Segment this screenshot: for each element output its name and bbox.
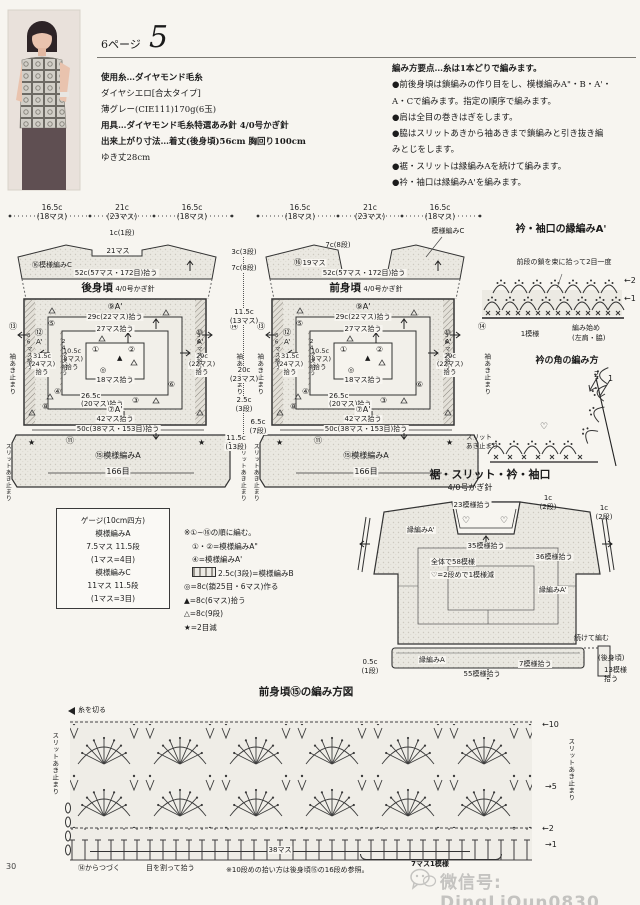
num-3: ③ [132, 396, 139, 406]
slit-stop-left: スリットあき止まり [50, 732, 58, 795]
lace-chart [66, 716, 544, 864]
points-text: 編み方要点…糸は1本どりで編みます。 ●前後身頃は鎖編みの作り目をし、模様編みA… [392, 61, 638, 191]
yoke-label: 模様編みC [432, 227, 465, 235]
yoke-label: ⑯模様編みC [32, 261, 72, 269]
dim-115a-sts: (13マス) [229, 317, 259, 325]
num-2: ② [128, 345, 135, 355]
num-1: ① [340, 345, 347, 355]
v24-pick: 24マス拾う [60, 339, 67, 376]
label-9A: ⑨A' [356, 302, 371, 312]
points-line: みとじをします。 [392, 142, 638, 158]
dim-115a: 11.5c [233, 308, 254, 316]
dim-center: 21c [363, 203, 377, 212]
c315-pick: 拾う [283, 369, 298, 377]
gauge-line: (1マス=3目) [57, 592, 169, 605]
materials-line: 出来上がり寸法…着丈(後身頃)56cm 胸回り100cm [101, 134, 391, 150]
front-panel-chart-section: 前身頃⑮の編み方図 糸を切る [30, 686, 630, 876]
dim-left: 16.5c [290, 203, 311, 212]
neck-heart-right: ♡ [500, 516, 508, 527]
points-line: 編み方要点…糸は1本どりで編みます。 [392, 61, 638, 77]
dim-right-sts: (18マス) [425, 212, 455, 221]
neck-heart-left: ♡ [462, 516, 470, 527]
ring-symbol: ◎ [100, 366, 106, 374]
back-ref: (後身頃) [598, 654, 624, 662]
pickup-42: 42マス拾う [96, 415, 135, 423]
dim-center-sts: (23マス) [107, 212, 137, 221]
row-10: ←10 [542, 720, 559, 730]
dim-left-sts: (18マス) [285, 212, 315, 221]
c105-pick: 拾う [314, 364, 327, 372]
dim-25c-sts: (3段) [235, 405, 254, 413]
center-dimensions: 3c(3段) 7c(8段) 11.5c (13マス) 20c (23マス) 2.… [224, 246, 268, 461]
hem-garment-shape [352, 496, 640, 678]
sts-166: 166目 [105, 467, 130, 477]
pickup-29-top: 29c(22マス)拾う [334, 313, 391, 321]
num-4: ④ [54, 387, 61, 397]
materials-text: 使用糸…ダイヤモンド毛糸 ダイヤシエロ[合太タイプ] 薄グレー(CIE111)1… [101, 70, 391, 166]
num-5: ⑤ [296, 319, 303, 329]
cuff-1c-a: 1c [544, 494, 552, 502]
corner-row-2: 2 [594, 370, 599, 380]
row-1-arrow: ←1 [624, 294, 636, 304]
neck-height: 7c(8段) [325, 241, 350, 249]
pick-23: 23模様拾う [453, 501, 492, 509]
legend-line: ①・②=模様編みA" [184, 540, 349, 554]
gauge-line: ゲージ(10cm四方) [57, 514, 169, 527]
corner-heart: ♡ [540, 422, 548, 433]
num-5: ⑤ [48, 319, 55, 329]
gauge-line: (1マス=4目) [57, 553, 169, 566]
slit-stop-left: スリットあき止まり [4, 443, 11, 502]
num-6: ⑥ [168, 380, 175, 390]
hem-hook: 4/0号かぎ針 [448, 483, 493, 493]
points-line: ●前後身頃は鎖編みの作り目をし、模様編みA"・B・A'・ [392, 77, 638, 93]
model-photo [8, 10, 80, 190]
v36-left: 36マス拾う [273, 333, 280, 370]
legend-line: ④=模様編みA' [184, 553, 349, 567]
hem-05c-2: (1段) [362, 667, 379, 675]
pickup-42: 42マス拾う [344, 415, 383, 423]
gauge-box: ゲージ(10cm四方) 模様編みA 7.5マス 11.5段 (1マス=4目) 模… [56, 508, 170, 609]
materials-line: ゆき丈28cm [101, 150, 391, 166]
yoke-num: ⑯ [294, 258, 302, 268]
cuff-1c-b: 1c [600, 504, 608, 512]
pickup-52: 52c(57マス・172目)拾う [322, 269, 407, 277]
sleeve-stop-left: 袖あき止まり [7, 353, 15, 395]
continue-label: 続けて編む [574, 634, 609, 642]
dim-right-sts: (18マス) [177, 212, 207, 221]
edge-A: 縁編みA [418, 656, 446, 664]
start-label-2: (左肩・脇) [572, 334, 605, 342]
pickup-27: 27マス拾う [344, 325, 383, 333]
gauge-line: 7.5マス 11.5段 [57, 540, 169, 553]
cuff-1c-b2: (2段) [596, 513, 613, 521]
dim-center-sts: (23マス) [355, 212, 385, 221]
symbol-legend: ※①~⑯の順に編む。 ①・②=模様編みA" ④=模様編みA' 2.5c(3段)=… [184, 526, 349, 634]
edge-A2-right: 縁編みA' [538, 586, 568, 594]
num-2: ② [376, 345, 383, 355]
piece-title: 後身頃 4/0号かぎ針 [81, 282, 154, 295]
pickup-18: 18マス拾う [344, 376, 383, 384]
pickup-50: 50c(38マス・153目)拾う [76, 425, 161, 433]
pickup-52: 52c(57マス・172目)拾う [74, 269, 159, 277]
pickup-50: 50c(38マス・153目)拾う [324, 425, 409, 433]
dim-65c: 6.5c [250, 418, 267, 426]
gauge-line: 模様編みA [57, 527, 169, 540]
start-label: 編み始め [572, 324, 600, 332]
dim-115b-sts: (13段) [224, 443, 247, 451]
label-9A: ⑨A' [108, 302, 123, 312]
legend-line: ★=2目減 [184, 621, 349, 635]
num-12-A: A' [284, 338, 291, 346]
v36-right: 36マス拾う [195, 333, 202, 370]
dim-25c: 2.5c [236, 396, 253, 404]
cuff-1c-a2: (2段) [540, 503, 557, 511]
gauge-line: 模様編みC [57, 566, 169, 579]
band-label: ⑮模様編みA [343, 451, 388, 461]
num-12-A: A' [36, 338, 43, 346]
star-right: ★ [198, 438, 205, 448]
piece-title: 前身頃 4/0号かぎ針 [329, 282, 402, 295]
triangle-filled: ▲ [365, 354, 370, 362]
legend-line: △=8c(9段) [184, 607, 349, 621]
materials-line: ダイヤシエロ[合太タイプ] [101, 86, 391, 102]
band-label: ⑮模様編みA [95, 451, 140, 461]
num-11: ⑪ [66, 436, 74, 446]
hem-diagram-section: 裾・スリット・衿・袖口 4/0号かぎ針 ♡ ♡ 23模様拾う 1c (2段) [352, 468, 640, 708]
row-1: →1 [545, 840, 557, 850]
legend-line: ※①~⑯の順に編む。 [184, 526, 349, 540]
slit-stop-right: スリットあき止まり [566, 738, 574, 801]
dim-center: 21c [115, 203, 129, 212]
pick-55: 55模様拾う [463, 670, 502, 678]
total-58: 全体で58模様 [430, 558, 476, 566]
row-5: →5 [545, 782, 557, 792]
dim-20c: 20c [237, 366, 252, 374]
num-8: ⑧ [42, 402, 49, 412]
num-13: ⑬ [9, 322, 17, 332]
star-left: ★ [276, 438, 283, 448]
legend-line-swatch: 2.5c(3段)=模様編みB [184, 567, 349, 581]
collar-note: 前段の鎖を束に拾って2目一度 [516, 258, 611, 266]
c315-pick: 拾う [35, 369, 50, 377]
pick-13-2: 拾う [604, 675, 618, 683]
legend-line: ▲=8c(6マス)拾う [184, 594, 349, 608]
points-line: ●衿・袖口は縁編みA'を編みます。 [392, 175, 638, 191]
collar-edging-section: 衿・袖口の縁編みA' 前段の鎖を束に拾って2目一度 ←2 ←1 1模様 編み始め… [482, 224, 640, 479]
dim-right: 16.5c [430, 203, 451, 212]
pattern-page: 6ページ 5 使用糸…ダイヤモンド毛糸 ダイヤシエロ[合太タイプ] 薄グレー(C… [0, 0, 640, 905]
label-7A: ⑦A' [107, 405, 124, 415]
motif-B-swatch [192, 567, 216, 577]
points-line: A・Cで編みます。指定の順序で編みます。 [392, 94, 638, 110]
collar-edging-chart [482, 272, 632, 324]
v24-pick: 24マス拾う [308, 339, 315, 376]
chart-title: 前身頃⑮の編み方図 [259, 686, 354, 699]
num-3: ③ [380, 396, 387, 406]
num-12: ⑫ [283, 328, 291, 338]
edge-A2-left: 縁編みA' [406, 526, 436, 534]
dim-7c: 7c(8段) [230, 264, 257, 272]
neck-sts: 19マス [302, 259, 327, 267]
v36-right: 36マス拾う [443, 333, 450, 370]
points-line: ●肩は全目の巻きはぎをします。 [392, 110, 638, 126]
continue-from-14: ⑭からつづく [78, 864, 120, 872]
triangle-filled: ▲ [117, 354, 122, 362]
wechat-icon [410, 868, 436, 890]
num-1: ① [92, 345, 99, 355]
dim-65c-sts: (7段) [249, 427, 268, 435]
dim-right: 16.5c [182, 203, 203, 212]
gauge-line: 11マス 11.5段 [57, 579, 169, 592]
dim-left: 16.5c [42, 203, 63, 212]
c105-pick: 拾う [66, 364, 79, 372]
page-label: 6ページ [101, 38, 141, 51]
watermark: 微信号: DingLiQun0830 [440, 868, 640, 905]
star-left: ★ [28, 438, 35, 448]
collar-corner-chart [486, 374, 631, 474]
num-4: ④ [302, 387, 309, 397]
ring-symbol: ◎ [348, 366, 354, 374]
cut-yarn-marker [68, 707, 75, 715]
header-rule [97, 57, 636, 58]
cut-yarn-label: 糸を切る [78, 706, 106, 714]
num-8: ⑧ [290, 402, 297, 412]
width-38: 38マス [268, 846, 293, 854]
num-6: ⑥ [416, 380, 423, 390]
page-number: 30 [6, 862, 16, 872]
points-line: ●裾・スリットは縁編みAを続けて編みます。 [392, 159, 638, 175]
neck-height: 1c(1段) [109, 229, 134, 237]
row10-note: ※10段めの拾い方は後身頃⑮の16段め参照。 [226, 866, 369, 874]
legend-line: ◎=8c(鎖25目・6マス)作る [184, 580, 349, 594]
neck-sts: 21マス [106, 247, 131, 255]
materials-line: 用具…ダイヤモンド毛糸特選あみ針 4/0号かぎ針 [101, 118, 391, 134]
pick-13: 13模様 [604, 666, 627, 674]
materials-line: 薄グレー(CIE111)170g(6玉) [101, 102, 391, 118]
star-right: ★ [446, 438, 453, 448]
num-11: ⑪ [314, 436, 322, 446]
dim-connector [243, 250, 244, 450]
design-number: 5 [149, 20, 168, 56]
num-12: ⑫ [35, 328, 43, 338]
pick-35: 35模様拾う [467, 542, 506, 550]
pickup-29-top: 29c(22マス)拾う [86, 313, 143, 321]
pick-7: 7模様拾う [518, 660, 552, 668]
one-motif: 1模様 [521, 330, 539, 338]
row-2-arrow: ←2 [624, 276, 636, 286]
row-2: ←2 [542, 824, 554, 834]
corner-row-1: 1 [608, 374, 613, 384]
dec-note: ♡=2段めで1模様減 [430, 571, 495, 579]
front-schematic: 16.5c (18マス) 21c (23マス) 16.5c (18マス) 7c(… [252, 203, 496, 503]
points-line: ●脇はスリットあきから袖あきまで鎖編みと引き抜き編 [392, 126, 638, 142]
c29-pick: 拾う [443, 369, 458, 377]
v36-left: 36マス拾う [25, 333, 32, 370]
dim-left-sts: (18マス) [37, 212, 67, 221]
back-schematic: 16.5c (18マス) 21c (23マス) 16.5c (18マス) 1c(… [4, 203, 248, 503]
pickup-18: 18マス拾う [96, 376, 135, 384]
corner-title: 衿の角の編み方 [535, 356, 598, 367]
hem-05c: 0.5c [363, 658, 378, 666]
dim-115b: 11.5c [225, 434, 246, 442]
pickup-27: 27マス拾う [96, 325, 135, 333]
collar-title: 衿・袖口の縁編みA' [516, 224, 607, 236]
hem-title: 裾・スリット・衿・袖口 [430, 468, 551, 481]
c29-pick: 拾う [195, 369, 210, 377]
dim-3c: 3c(3段) [230, 248, 257, 256]
materials-line: 使用糸…ダイヤモンド毛糸 [101, 70, 391, 86]
pick-36: 36模様拾う [535, 553, 574, 561]
label-7A: ⑦A' [355, 405, 372, 415]
dim-20c-sts: (23マス) [229, 375, 259, 383]
split-stitch-note: 目を割って拾う [146, 864, 195, 872]
